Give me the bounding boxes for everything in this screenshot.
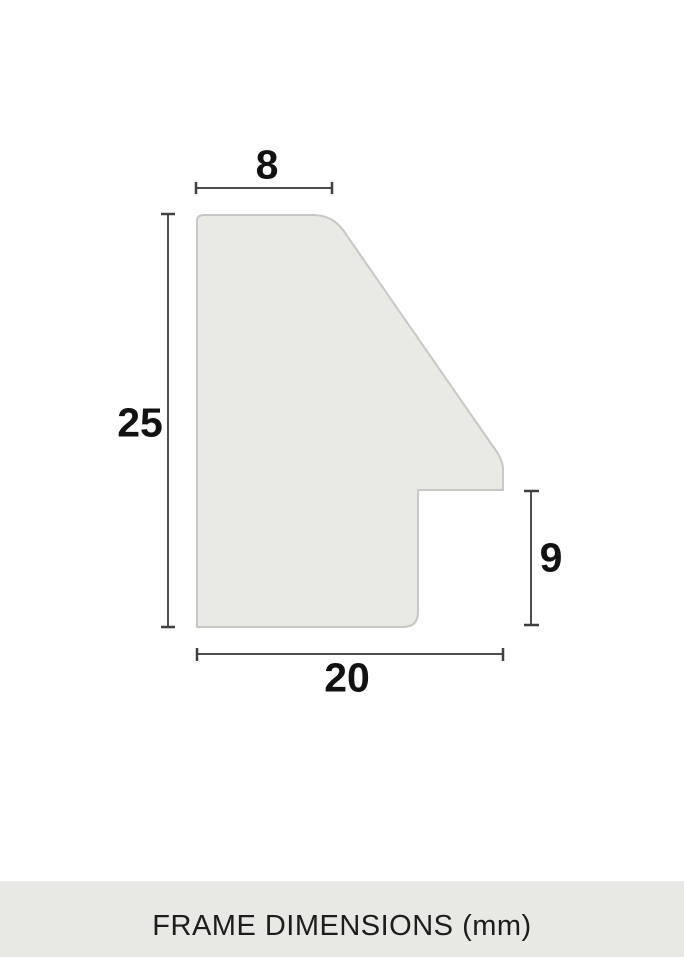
frame-profile-shape xyxy=(197,215,503,627)
dim-right-height xyxy=(524,491,539,625)
caption-text: FRAME DIMENSIONS (mm) xyxy=(152,910,531,943)
dim-label-right-height: 9 xyxy=(540,538,563,579)
dim-label-bottom-width: 20 xyxy=(324,658,370,699)
dim-label-left-height: 25 xyxy=(117,403,163,444)
dim-left-height xyxy=(161,214,175,627)
profile-drawing: 8 25 9 20 xyxy=(0,0,684,881)
caption-band: FRAME DIMENSIONS (mm) xyxy=(0,881,684,957)
frame-dimensions-figure: 8 25 9 20 FRAME DIMENSIONS (mm) xyxy=(0,0,684,957)
dim-label-top-width: 8 xyxy=(256,145,279,186)
profile-drawing-svg xyxy=(0,0,684,881)
